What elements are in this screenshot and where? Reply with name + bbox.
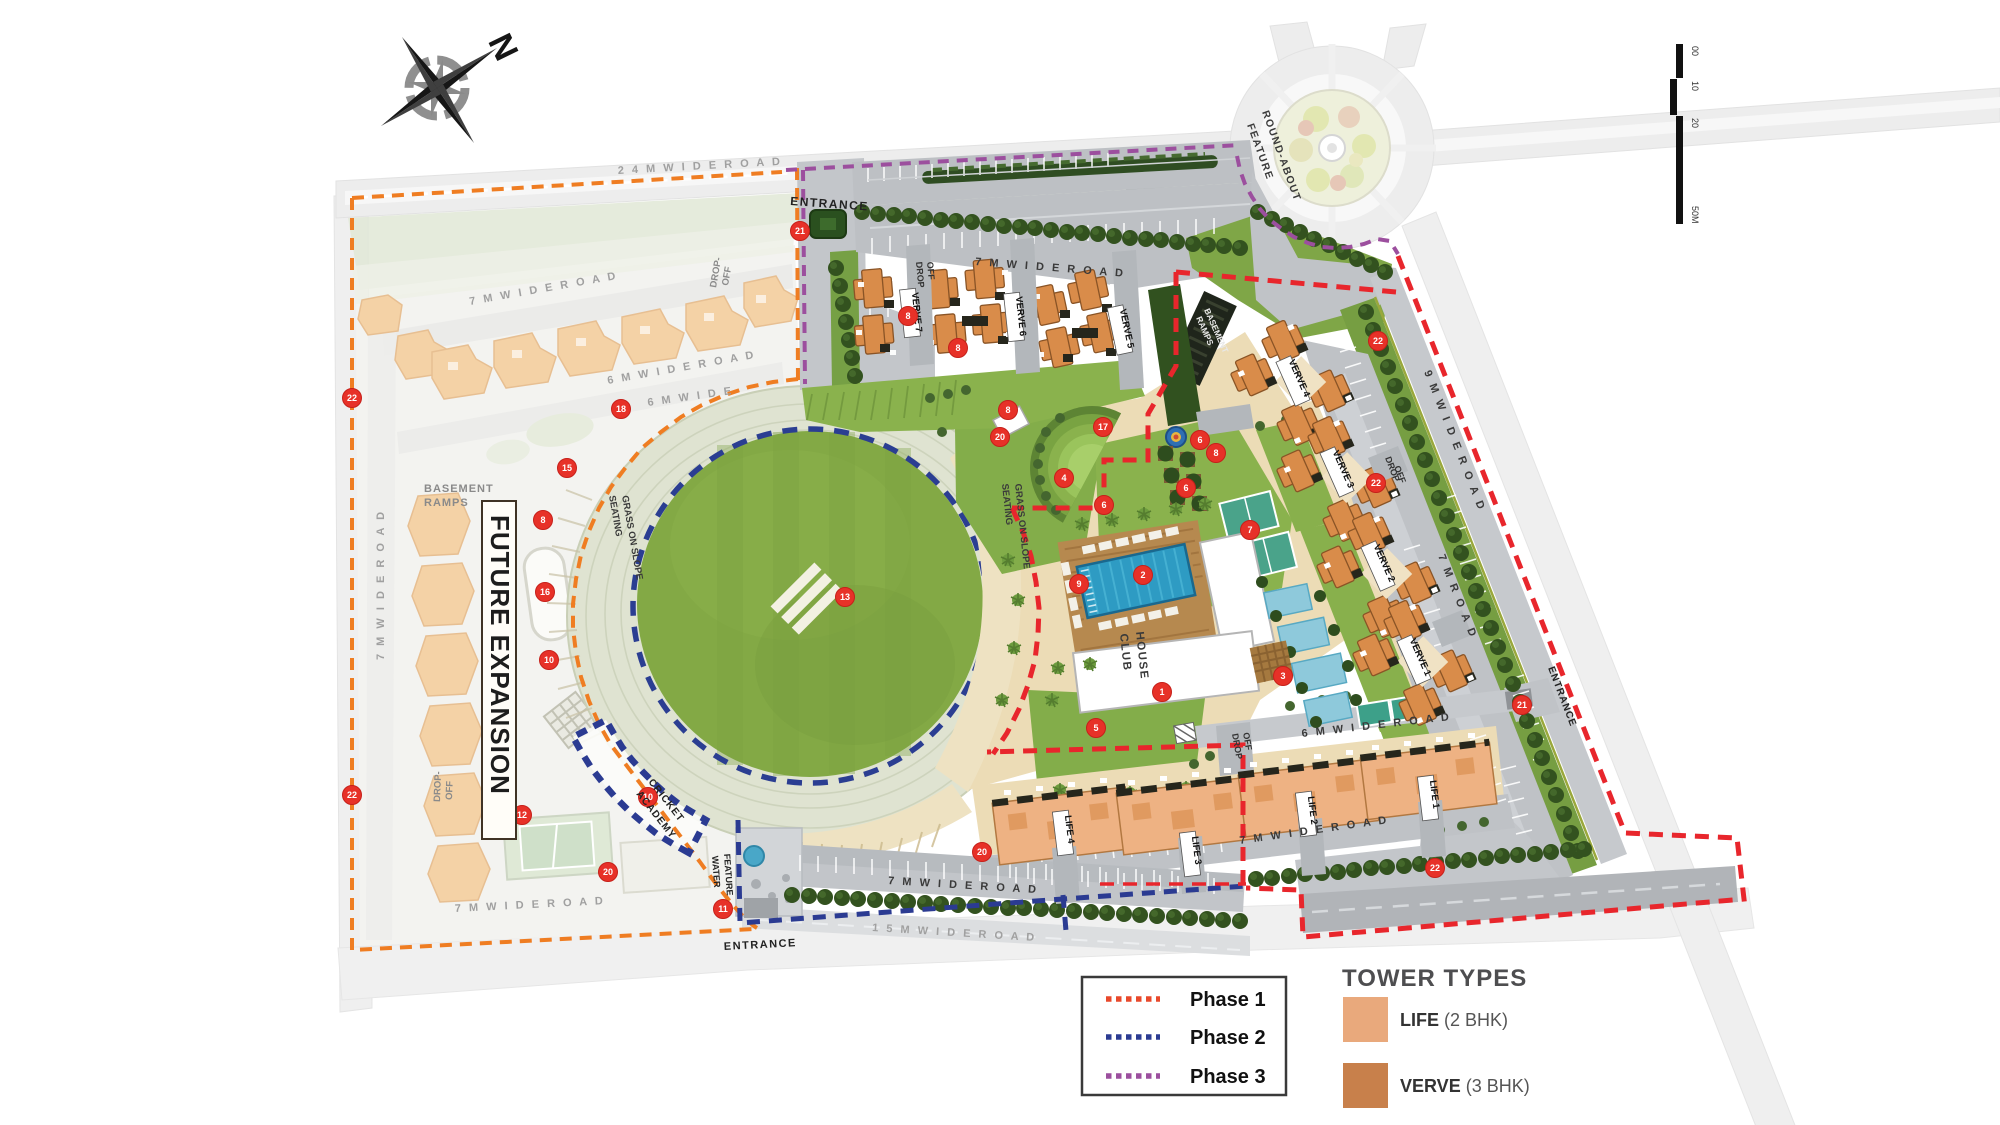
svg-text:TOWER TYPES: TOWER TYPES <box>1342 965 1527 992</box>
svg-text:20: 20 <box>977 847 987 857</box>
svg-text:FUTURE EXPANSION: FUTURE EXPANSION <box>485 515 515 795</box>
svg-text:50M: 50M <box>1690 206 1700 224</box>
svg-text:10: 10 <box>544 655 554 665</box>
svg-text:6: 6 <box>1101 500 1106 510</box>
svg-text:Phase 1: Phase 1 <box>1190 989 1266 1011</box>
svg-text:RAMPS: RAMPS <box>424 497 469 509</box>
svg-text:LIFE (2 BHK): LIFE (2 BHK) <box>1400 1010 1508 1030</box>
svg-text:16: 16 <box>540 587 550 597</box>
svg-text:6: 6 <box>1183 483 1188 493</box>
svg-text:20: 20 <box>995 432 1005 442</box>
svg-text:6: 6 <box>1197 435 1202 445</box>
svg-text:13: 13 <box>840 592 850 602</box>
svg-text:OFF: OFF <box>925 261 937 280</box>
svg-text:OFF: OFF <box>444 781 456 801</box>
svg-text:12: 12 <box>517 810 527 820</box>
svg-text:22: 22 <box>347 393 357 403</box>
svg-text:11: 11 <box>718 904 728 914</box>
svg-text:10: 10 <box>1690 81 1700 91</box>
svg-text:BASEMENT: BASEMENT <box>424 483 494 495</box>
svg-text:8: 8 <box>540 515 545 525</box>
svg-text:1: 1 <box>1159 687 1164 697</box>
svg-text:22: 22 <box>1373 336 1383 346</box>
svg-text:VERVE (3 BHK): VERVE (3 BHK) <box>1400 1076 1530 1096</box>
svg-text:7 M W I D E R O A D: 7 M W I D E R O A D <box>375 509 387 660</box>
svg-text:3: 3 <box>1280 671 1285 681</box>
svg-text:21: 21 <box>795 226 805 236</box>
svg-text:22: 22 <box>1430 863 1440 873</box>
svg-text:00: 00 <box>1690 46 1700 56</box>
svg-text:20: 20 <box>1690 118 1700 128</box>
svg-text:7: 7 <box>1247 525 1252 535</box>
svg-text:21: 21 <box>1517 700 1527 710</box>
svg-text:18: 18 <box>616 404 626 414</box>
svg-text:15: 15 <box>562 463 572 473</box>
svg-text:20: 20 <box>603 867 613 877</box>
svg-text:9: 9 <box>1076 579 1081 589</box>
svg-text:Phase 2: Phase 2 <box>1190 1027 1266 1049</box>
svg-text:8: 8 <box>1213 448 1218 458</box>
svg-text:DROP-: DROP- <box>432 771 444 802</box>
svg-text:5: 5 <box>1093 723 1098 733</box>
svg-text:8: 8 <box>955 343 960 353</box>
svg-text:Phase 3: Phase 3 <box>1190 1066 1266 1088</box>
svg-text:2: 2 <box>1140 570 1145 580</box>
svg-text:8: 8 <box>905 311 910 321</box>
svg-text:17: 17 <box>1098 422 1108 432</box>
svg-text:22: 22 <box>347 790 357 800</box>
svg-text:8: 8 <box>1005 405 1010 415</box>
svg-text:22: 22 <box>1371 478 1381 488</box>
svg-text:4: 4 <box>1061 473 1066 483</box>
